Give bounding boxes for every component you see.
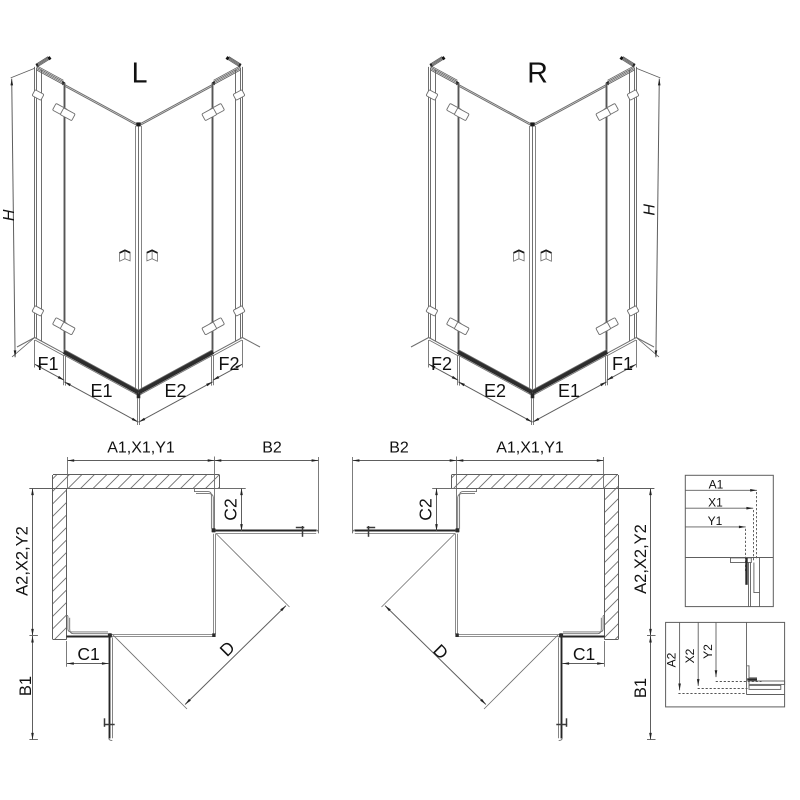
svg-text:F1: F1 (37, 354, 58, 374)
svg-text:B2: B2 (262, 440, 282, 457)
svg-text:F1: F1 (612, 354, 633, 374)
svg-text:C2: C2 (416, 498, 436, 520)
svg-text:H: H (1, 209, 18, 221)
svg-text:C1: C1 (77, 644, 99, 664)
svg-text:A1,X1,Y1: A1,X1,Y1 (107, 440, 175, 457)
svg-text:A1,X1,Y1: A1,X1,Y1 (496, 440, 564, 457)
svg-text:A2,X2,Y2: A2,X2,Y2 (14, 526, 32, 596)
svg-text:H: H (641, 204, 658, 216)
svg-text:E1: E1 (90, 381, 112, 401)
svg-text:L: L (132, 58, 148, 90)
svg-text:R: R (527, 58, 548, 90)
svg-text:A2,X2,Y2: A2,X2,Y2 (632, 524, 650, 594)
svg-text:C2: C2 (221, 498, 241, 520)
svg-text:B1: B1 (17, 676, 35, 696)
svg-text:Y2: Y2 (701, 644, 715, 659)
svg-text:A1: A1 (709, 478, 724, 492)
svg-text:E2: E2 (164, 381, 186, 401)
svg-text:F2: F2 (431, 354, 452, 374)
svg-text:B2: B2 (389, 440, 409, 457)
svg-text:A2: A2 (665, 652, 679, 667)
svg-text:E1: E1 (558, 381, 580, 401)
svg-text:Y1: Y1 (708, 514, 723, 528)
svg-text:F2: F2 (218, 354, 239, 374)
svg-text:C1: C1 (573, 644, 595, 664)
svg-text:X1: X1 (708, 496, 723, 510)
svg-text:X2: X2 (683, 648, 697, 663)
svg-text:B1: B1 (632, 678, 650, 698)
svg-text:E2: E2 (484, 381, 506, 401)
